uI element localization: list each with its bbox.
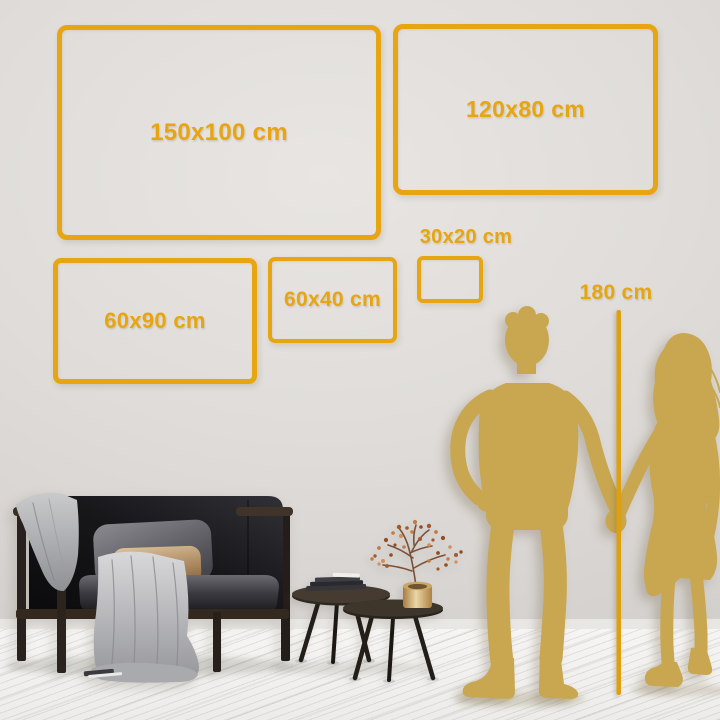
size-frame-150x100: 150x100 cm <box>57 25 381 240</box>
size-frame-120x80: 120x80 cm <box>393 24 658 195</box>
size-frame-60x40: 60x40 cm <box>268 257 397 343</box>
size-frame-60x90-label: 60x90 cm <box>104 308 206 334</box>
size-frame-30x20 <box>417 256 483 303</box>
size-frame-150x100-label: 150x100 cm <box>150 119 288 147</box>
height-ruler-label: 180 cm <box>516 281 716 305</box>
size-frame-120x80-label: 120x80 cm <box>466 96 585 123</box>
size-frame-30x20-label: 30x20 cm <box>366 226 566 249</box>
floor <box>0 629 720 720</box>
size-frame-60x40-label: 60x40 cm <box>284 288 381 312</box>
room-scene: 150x100 cm 120x80 cm 60x90 cm 60x40 cm 3… <box>0 0 720 720</box>
size-frame-60x90: 60x90 cm <box>53 258 257 384</box>
